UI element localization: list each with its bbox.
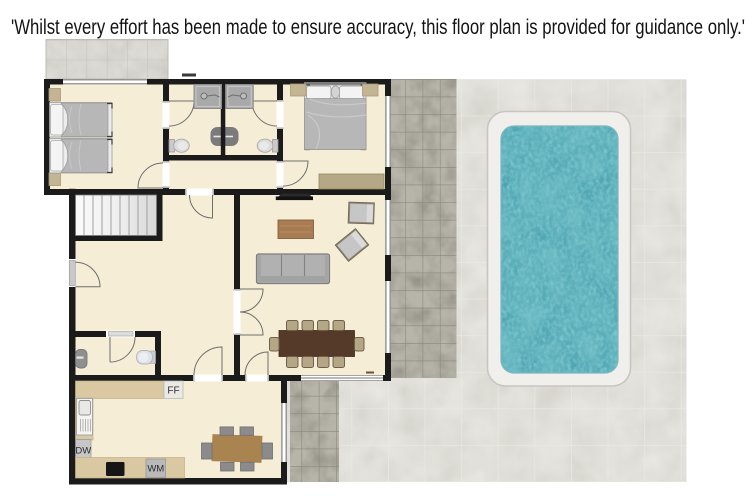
svg-text:WM: WM (147, 464, 164, 475)
svg-text:DW: DW (75, 446, 91, 457)
svg-text:'Whilst every effort has been: 'Whilst every effort has been made to en… (11, 16, 745, 39)
svg-text:FF: FF (167, 386, 179, 397)
